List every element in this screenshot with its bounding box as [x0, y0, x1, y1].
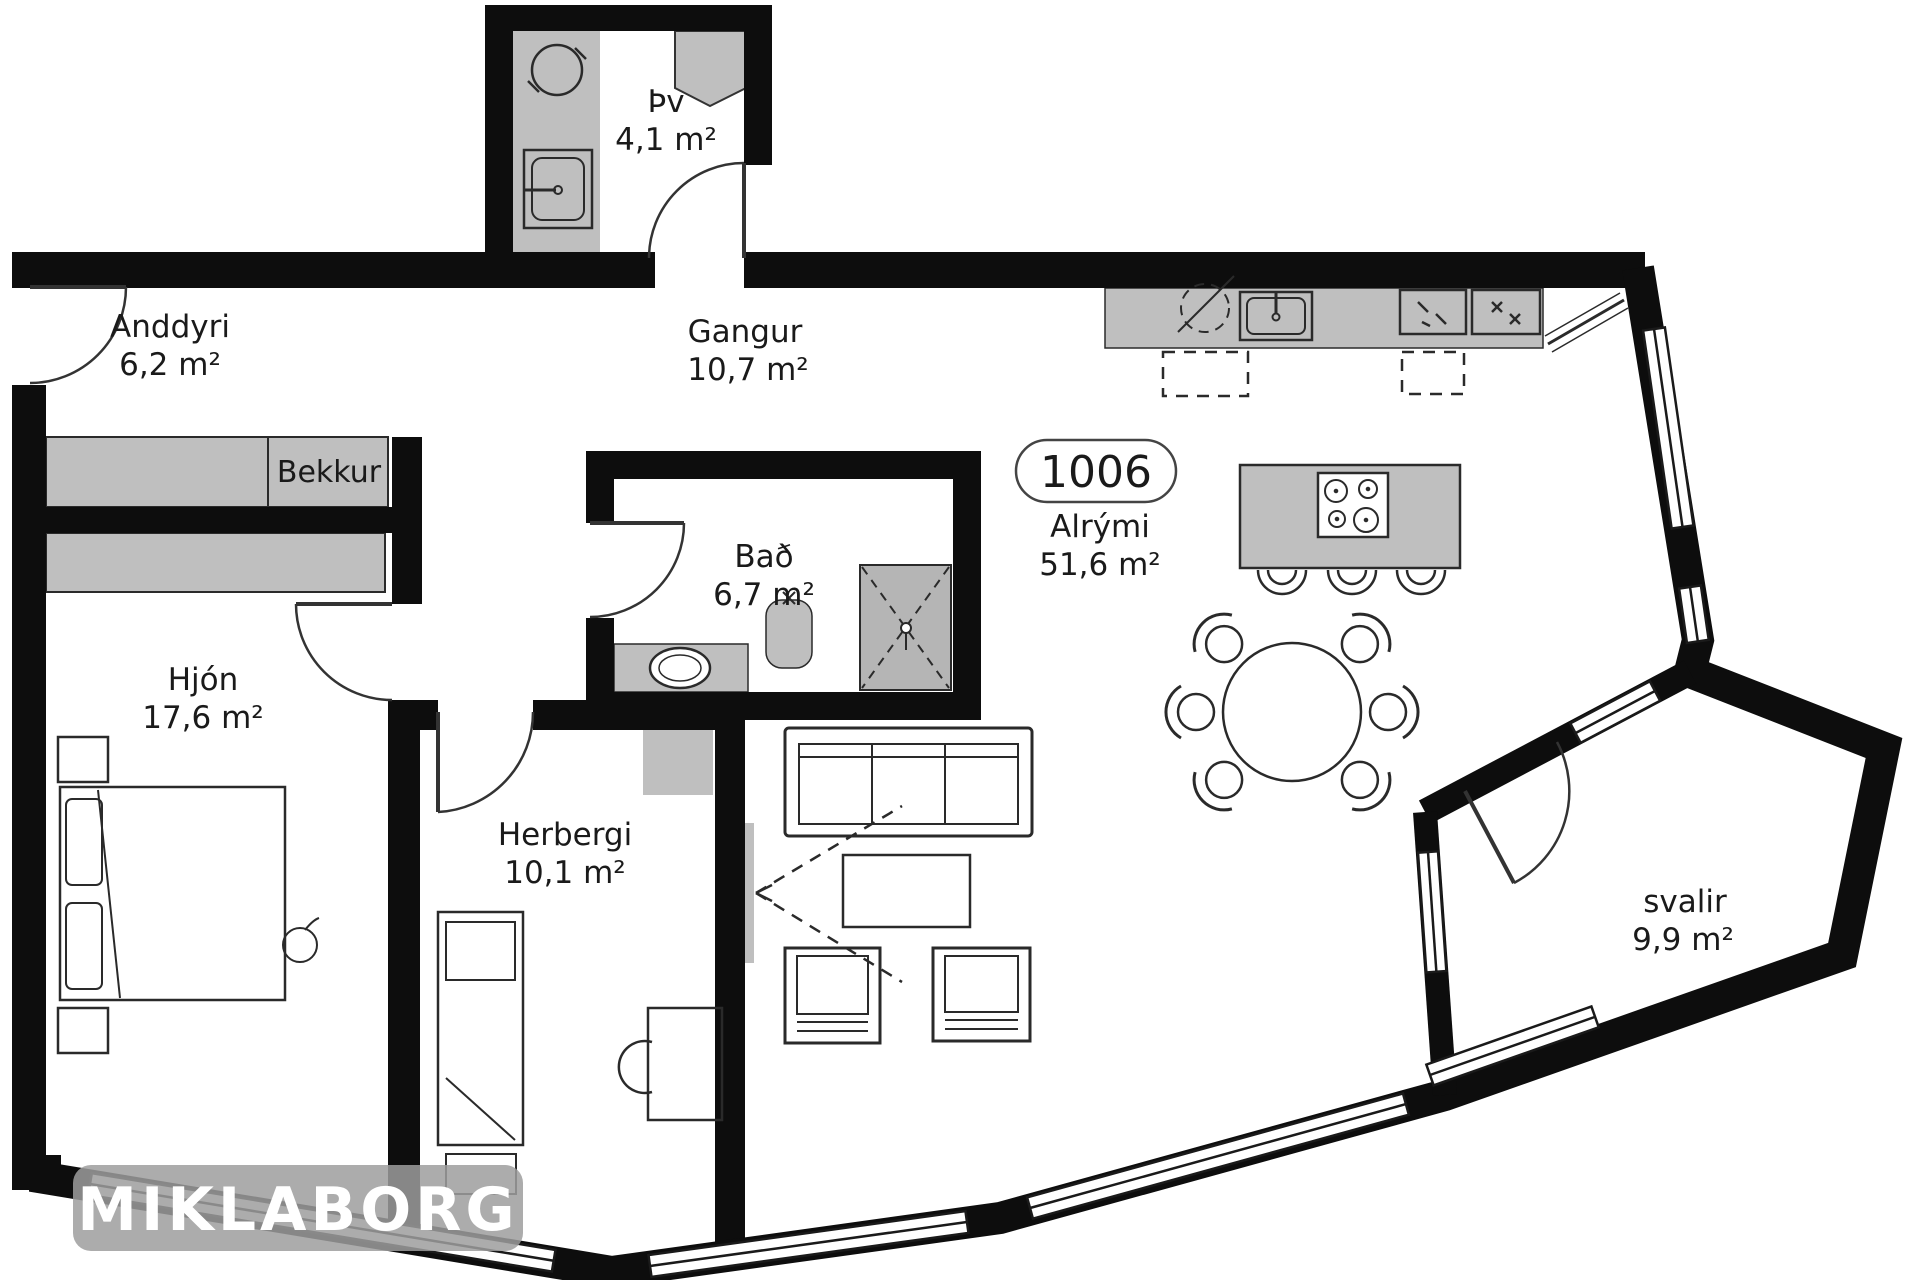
wall-anddyri-hjon — [46, 507, 422, 533]
door-swing-arc — [649, 163, 744, 258]
room-label-herbergi: Herbergi — [498, 817, 632, 853]
wall-bath-top — [586, 451, 981, 479]
wall-top-right — [744, 252, 1645, 288]
laundry-door — [649, 163, 744, 258]
washing-machine — [513, 31, 600, 112]
pantry-door — [1545, 293, 1628, 352]
sofa — [785, 728, 1032, 836]
vanity-sink-icon — [650, 648, 710, 688]
room-area-anddyri: 6,2 m² — [119, 347, 221, 383]
floor-plan: Anddyri 6,2 m² Þv 4,1 m² Gangur 10,7 m² … — [0, 0, 1920, 1280]
wall-left-stub — [12, 252, 46, 285]
room-label-alrymi: Alrými — [1050, 509, 1150, 545]
laundry-wall-top — [485, 5, 772, 31]
room-area-thvottahus: 4,1 m² — [615, 122, 717, 158]
floor-lamp — [283, 918, 319, 962]
desk — [619, 1008, 722, 1120]
bath-door — [590, 523, 684, 617]
unit-number: 1006 — [1040, 447, 1152, 498]
wall-corridor-lower — [392, 533, 422, 604]
wall-herbergi-alrymi — [715, 700, 745, 1245]
nightstand — [58, 737, 108, 782]
room-area-hjon: 17,6 m² — [142, 700, 264, 736]
window-strip — [1418, 851, 1446, 972]
wall-herbergi-stub — [420, 700, 438, 730]
laundry-counter — [513, 112, 600, 252]
bench-label: Bekkur — [277, 455, 382, 490]
window-strip — [1570, 681, 1660, 743]
wall-bath-bottom — [586, 692, 981, 720]
floor-plan-svg: Anddyri 6,2 m² Þv 4,1 m² Gangur 10,7 m² … — [0, 0, 1920, 1280]
room-label-gangur: Gangur — [688, 314, 803, 350]
hjon-door — [296, 604, 392, 700]
armchair — [933, 948, 1030, 1041]
door-swing-arc — [296, 604, 392, 700]
water-heater-icon — [675, 31, 746, 106]
wall-bath-right — [953, 479, 981, 720]
hjon-wardrobe — [46, 533, 385, 592]
room-area-alrymi: 51,6 m² — [1039, 547, 1161, 583]
dining-chairs — [1166, 604, 1418, 819]
door-swing-arc — [438, 712, 533, 812]
room-area-bad: 6,7 m² — [713, 577, 815, 613]
room-label-bad: Bað — [734, 539, 793, 575]
dining-table — [1166, 604, 1418, 819]
room-area-svalir: 9,9 m² — [1632, 922, 1734, 958]
room-area-gangur: 10,7 m² — [687, 352, 809, 388]
room-label-thvottahus: Þv — [647, 84, 684, 120]
bar-stools — [1258, 570, 1445, 594]
wall-bath-left-upper — [586, 479, 614, 523]
coffee-table — [843, 855, 970, 927]
unit-badge: 1006 — [1016, 440, 1176, 502]
watermark-text: MIKLABORG — [77, 1175, 518, 1245]
cooktop-icon — [1318, 473, 1388, 537]
room-label-svalir: svalir — [1643, 884, 1727, 920]
wall-perimeter-right-bottom — [45, 268, 1884, 1272]
room-label-anddyri: Anddyri — [110, 309, 230, 345]
room-area-herbergi: 10,1 m² — [504, 855, 626, 891]
herbergi-door — [438, 712, 533, 812]
laundry-wall-left — [485, 5, 513, 265]
window-strip — [1027, 1094, 1409, 1219]
armchair — [785, 948, 880, 1043]
wall-corridor-upper — [392, 437, 422, 507]
tv-icon — [745, 823, 754, 963]
laundry-wall-right — [744, 5, 772, 165]
nightstand — [58, 1008, 108, 1053]
room-label-hjon: Hjón — [168, 662, 239, 698]
herbergi-wardrobe — [643, 728, 713, 795]
double-bed — [60, 787, 285, 1000]
kitchen-counter — [1105, 288, 1543, 348]
door-swing-arc — [590, 523, 684, 617]
furniture — [58, 45, 1628, 1194]
single-bed — [438, 912, 523, 1194]
watermark: MIKLABORG — [73, 1165, 523, 1251]
wall-top-left — [12, 252, 655, 288]
wall-left — [12, 385, 46, 1190]
